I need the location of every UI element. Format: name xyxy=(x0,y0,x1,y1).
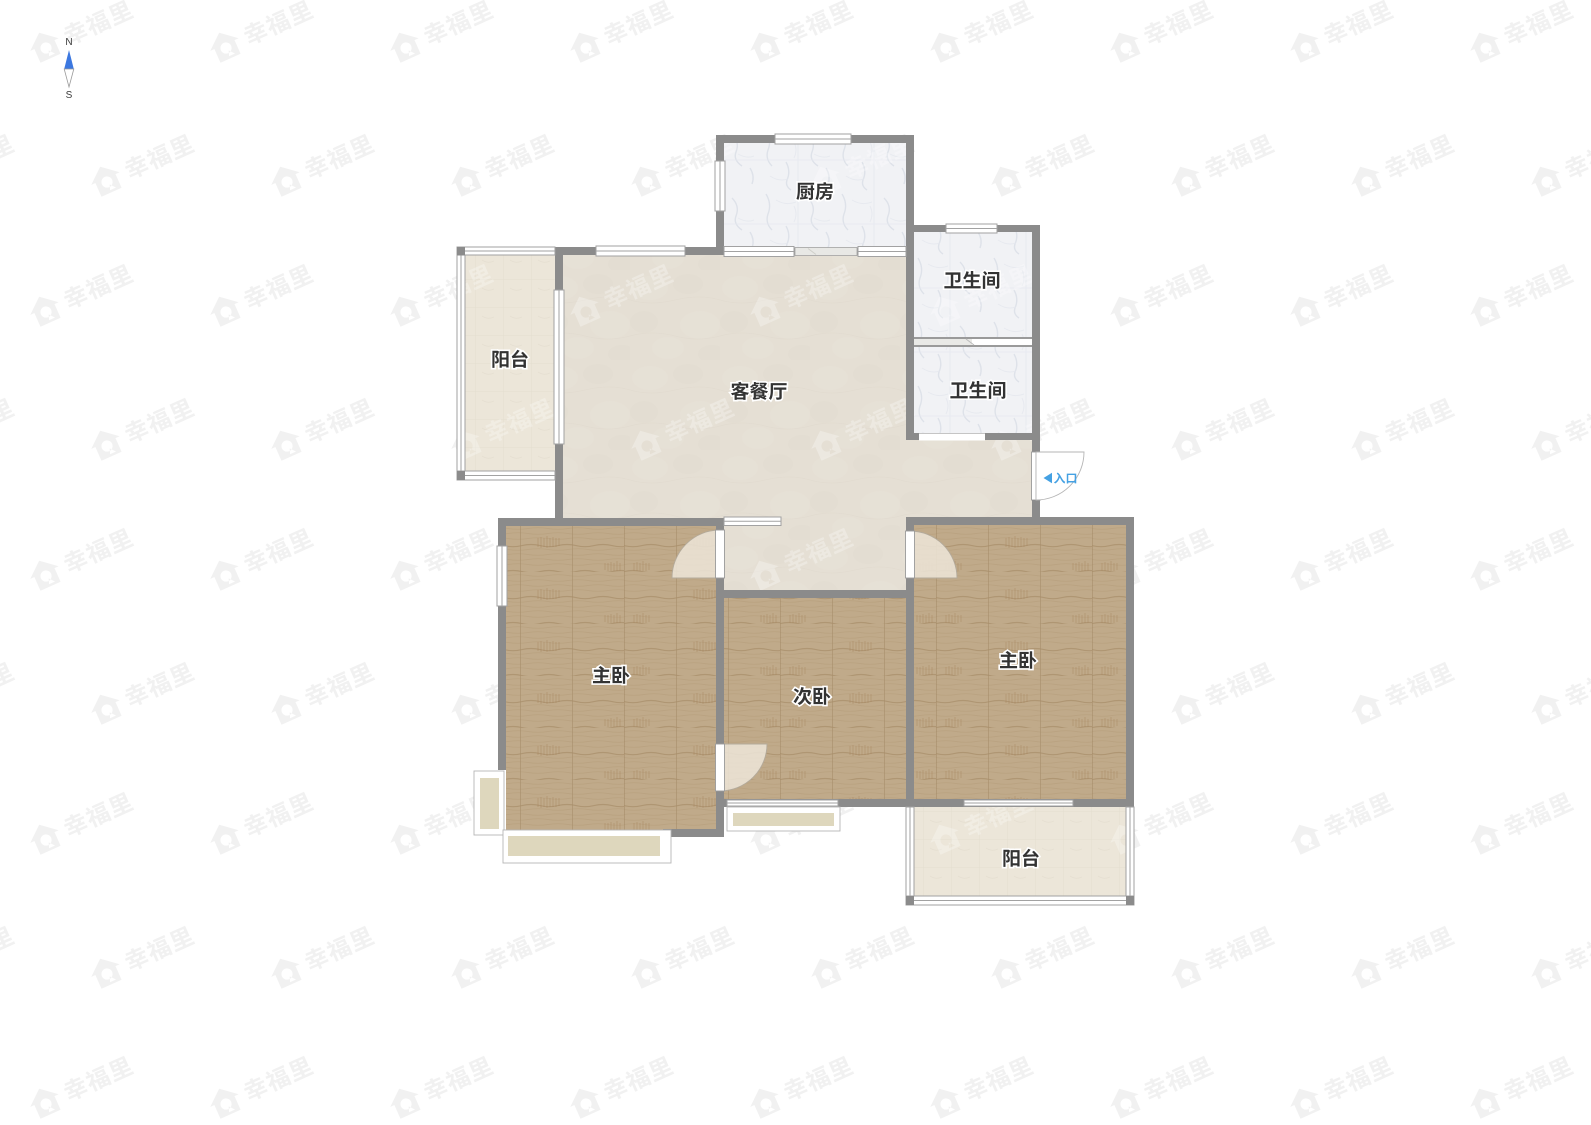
svg-text:S: S xyxy=(66,90,73,101)
svg-text:N: N xyxy=(65,37,72,48)
